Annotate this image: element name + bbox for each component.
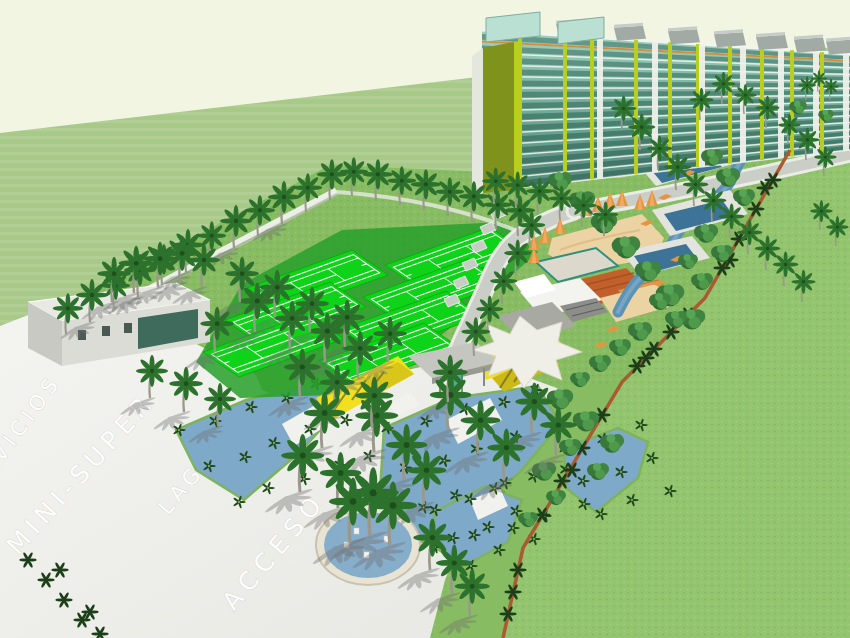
tower-column <box>843 54 849 151</box>
lime-stripe <box>668 42 672 170</box>
lime-stripe <box>728 46 732 164</box>
roof-box <box>614 26 646 41</box>
roof-box <box>714 32 746 47</box>
architectural-render: SERVICIOS MINI-SUPER LAGO ACCESO <box>0 0 850 638</box>
roof-box <box>668 29 700 44</box>
lime-stripe <box>590 37 594 179</box>
roof-box <box>794 37 826 52</box>
tower-column <box>597 38 603 179</box>
lime-stripe <box>820 52 824 153</box>
site-plan-svg: SERVICIOS MINI-SUPER LAGO ACCESO <box>0 0 850 638</box>
tower-column <box>778 49 784 157</box>
roof-box <box>826 39 850 54</box>
roof-box <box>756 35 788 50</box>
lime-stripe <box>563 35 567 182</box>
tower-end-wall <box>483 42 514 193</box>
